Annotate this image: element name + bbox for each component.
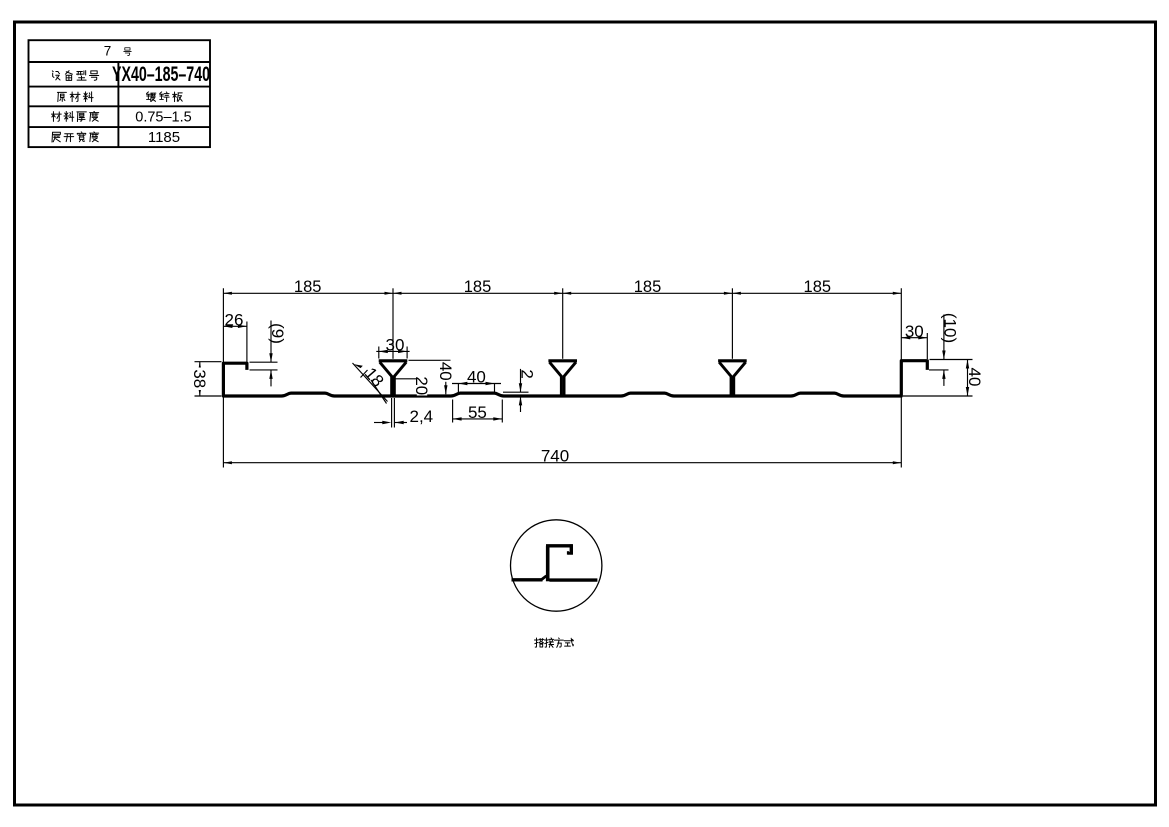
- svg-text:2,4: 2,4: [410, 407, 434, 426]
- svg-text:YX40–185–740: YX40–185–740: [112, 63, 210, 86]
- svg-text:30: 30: [386, 335, 405, 354]
- svg-text:185: 185: [634, 278, 662, 296]
- svg-text:26: 26: [225, 310, 244, 329]
- svg-text:740: 740: [541, 447, 569, 466]
- svg-text:(10): (10): [940, 313, 959, 343]
- svg-text:0.75–1.5: 0.75–1.5: [135, 110, 191, 126]
- svg-text:40: 40: [467, 368, 486, 387]
- svg-text:185: 185: [464, 278, 492, 296]
- svg-text:20: 20: [412, 376, 431, 395]
- svg-text:55: 55: [468, 403, 487, 422]
- svg-text:185: 185: [804, 278, 832, 296]
- svg-text:7: 7: [104, 44, 112, 59]
- svg-text:30: 30: [905, 322, 924, 341]
- svg-text:40: 40: [436, 362, 455, 381]
- svg-text:(9): (9): [268, 323, 287, 344]
- svg-text:2: 2: [517, 369, 536, 378]
- svg-text:38: 38: [190, 369, 209, 388]
- svg-text:40: 40: [965, 368, 984, 387]
- svg-text:185: 185: [294, 278, 322, 296]
- svg-text:1185: 1185: [148, 129, 180, 146]
